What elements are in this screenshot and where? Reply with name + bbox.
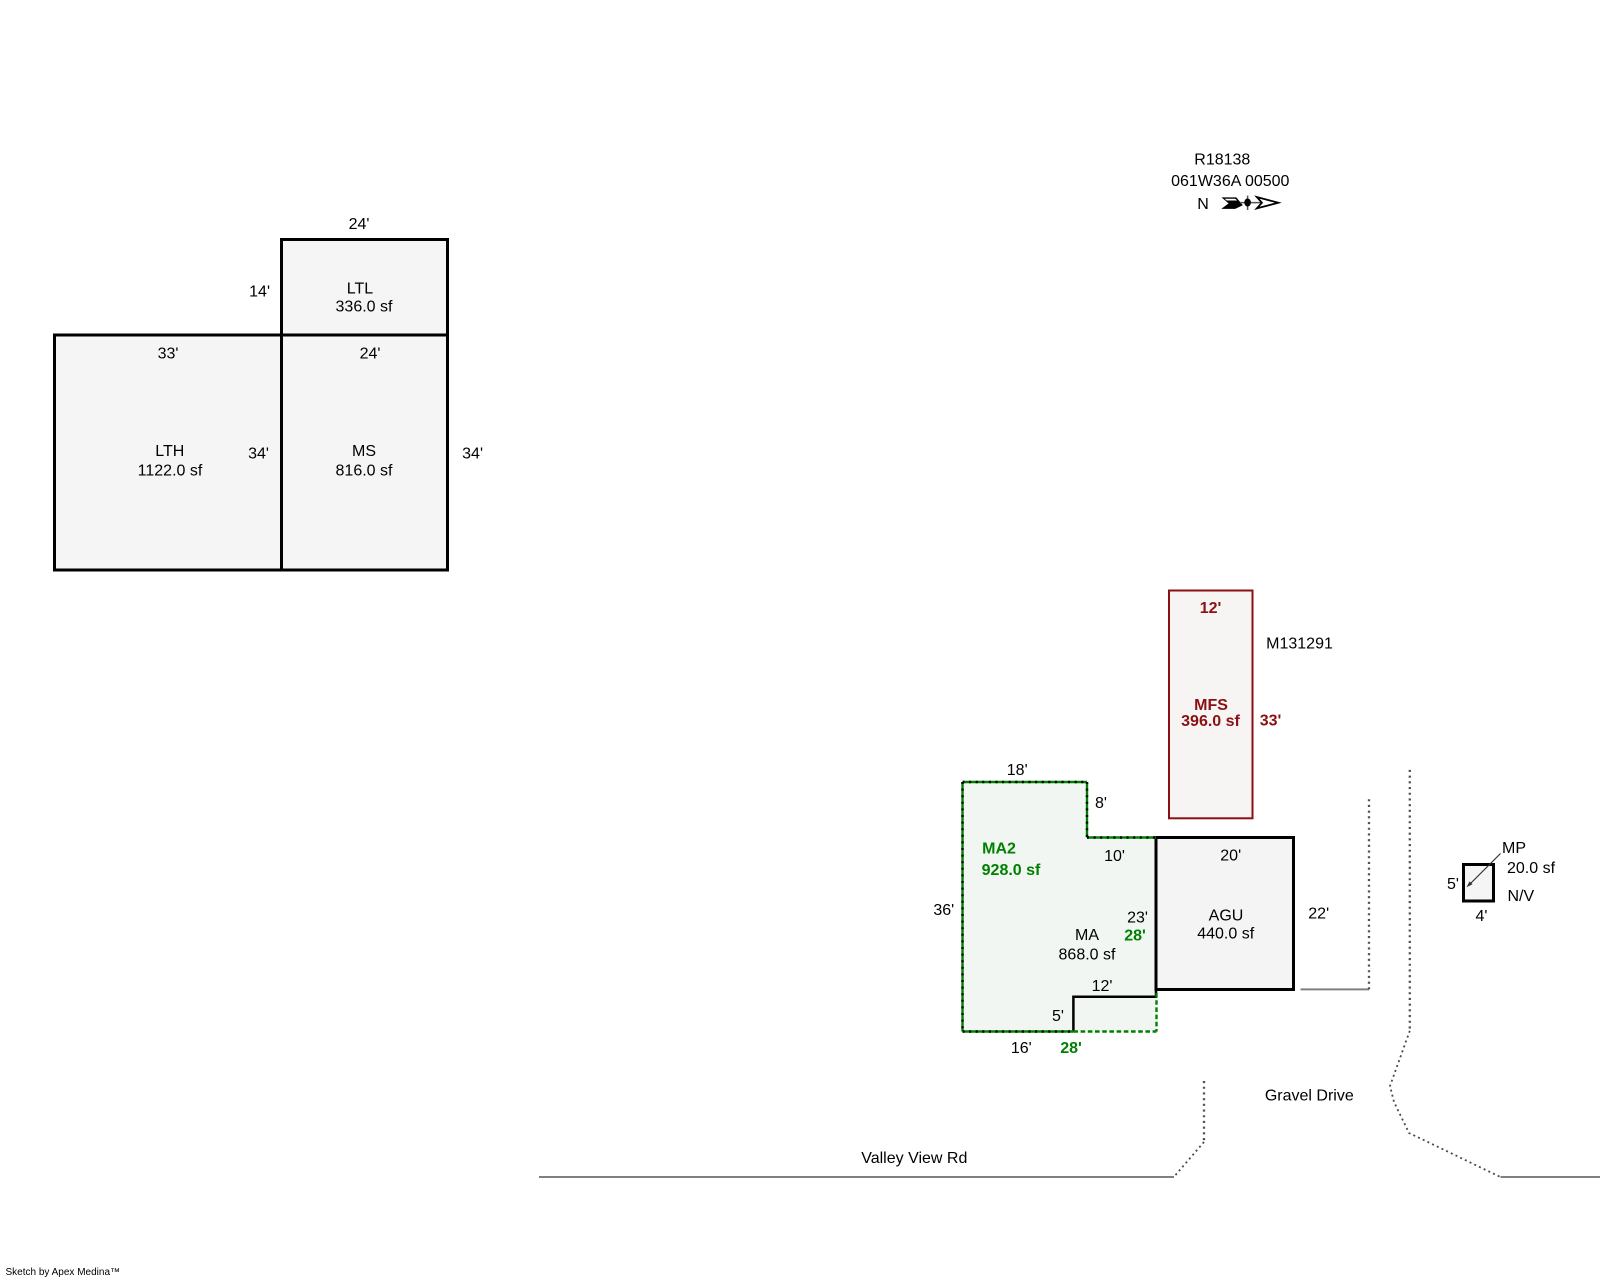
svg-text:20': 20'	[1220, 848, 1241, 865]
svg-text:R18138: R18138	[1194, 152, 1250, 169]
svg-text:33': 33'	[158, 345, 179, 362]
svg-text:16': 16'	[1011, 1040, 1032, 1057]
svg-text:12': 12'	[1200, 600, 1222, 617]
svg-text:22': 22'	[1308, 906, 1329, 923]
svg-text:10': 10'	[1104, 848, 1125, 865]
svg-text:AGU: AGU	[1209, 908, 1244, 925]
svg-text:LTH: LTH	[155, 443, 184, 460]
svg-text:396.0 sf: 396.0 sf	[1181, 713, 1240, 730]
svg-text:MA2: MA2	[982, 841, 1016, 858]
svg-text:23': 23'	[1127, 910, 1148, 927]
svg-text:336.0 sf: 336.0 sf	[336, 298, 393, 315]
svg-text:061W36A 00500: 061W36A 00500	[1171, 173, 1289, 190]
svg-text:MP: MP	[1502, 840, 1526, 857]
svg-text:N/V: N/V	[1508, 888, 1535, 905]
svg-text:N: N	[1197, 196, 1209, 213]
svg-text:28': 28'	[1124, 928, 1146, 945]
svg-text:M131291: M131291	[1266, 636, 1333, 653]
svg-text:868.0 sf: 868.0 sf	[1059, 947, 1116, 964]
svg-text:28': 28'	[1060, 1040, 1082, 1057]
svg-text:24': 24'	[349, 216, 370, 233]
svg-text:MA: MA	[1075, 927, 1099, 944]
svg-text:33': 33'	[1260, 712, 1282, 729]
svg-text:12': 12'	[1092, 978, 1113, 995]
svg-text:24': 24'	[360, 345, 381, 362]
svg-text:Valley View Rd: Valley View Rd	[861, 1150, 967, 1167]
svg-text:MS: MS	[352, 443, 376, 460]
svg-text:36': 36'	[933, 902, 954, 919]
svg-text:Sketch by Apex Medina™: Sketch by Apex Medina™	[6, 1267, 121, 1278]
svg-text:5': 5'	[1052, 1008, 1064, 1025]
svg-text:18': 18'	[1007, 762, 1028, 779]
svg-text:20.0 sf: 20.0 sf	[1507, 860, 1556, 877]
svg-text:MFS: MFS	[1194, 697, 1228, 714]
svg-text:34': 34'	[248, 446, 269, 463]
svg-text:5': 5'	[1447, 876, 1459, 893]
svg-text:816.0 sf: 816.0 sf	[336, 463, 393, 480]
svg-text:928.0 sf: 928.0 sf	[982, 862, 1041, 879]
svg-text:8': 8'	[1095, 795, 1107, 812]
svg-text:14': 14'	[249, 283, 270, 300]
svg-text:4': 4'	[1476, 908, 1488, 925]
svg-text:Gravel Drive: Gravel Drive	[1265, 1088, 1354, 1105]
svg-text:1122.0 sf: 1122.0 sf	[138, 463, 203, 480]
svg-text:440.0 sf: 440.0 sf	[1197, 926, 1254, 943]
svg-text:34': 34'	[462, 446, 483, 463]
svg-text:LTL: LTL	[347, 280, 373, 297]
